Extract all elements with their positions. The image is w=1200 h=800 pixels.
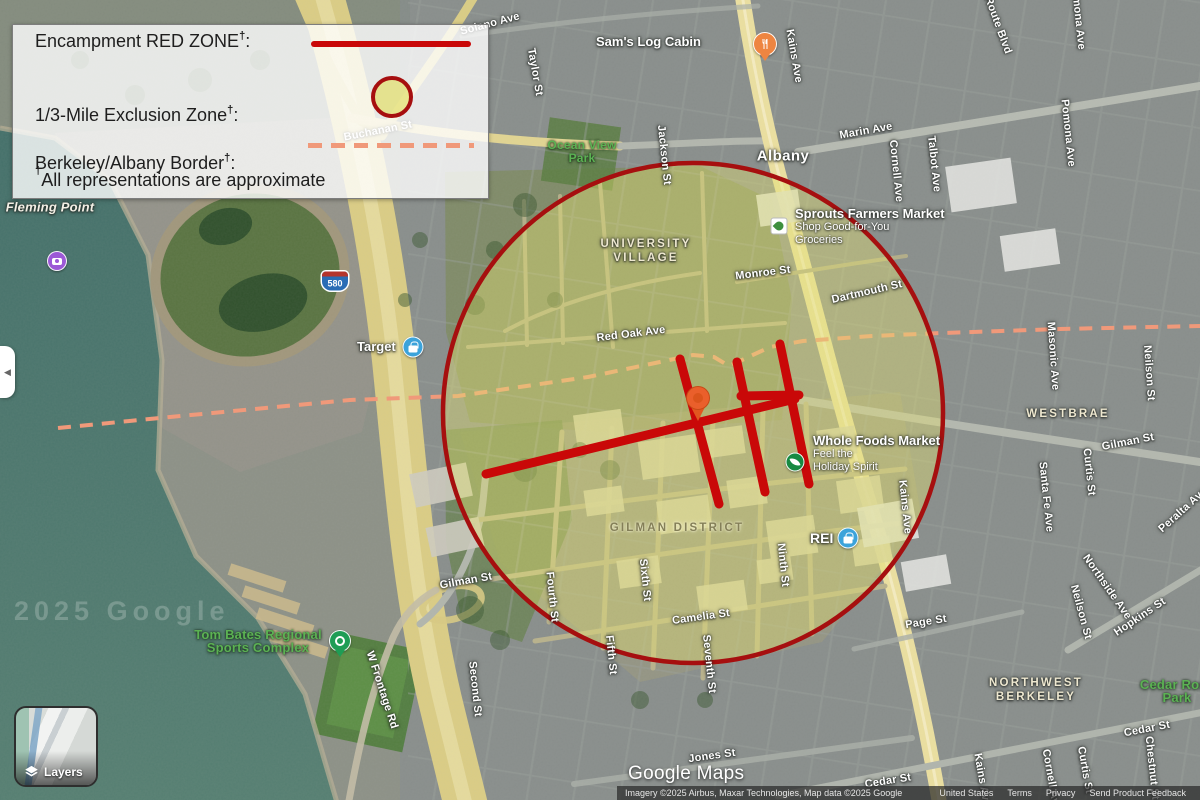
legend-label-red-zone: Encampment RED ZONE [35,31,239,52]
legend-swatch-red-line [311,41,471,47]
chevron-left-icon: ◀ [4,367,11,378]
legend-swatch-exclusion-circle [371,76,413,118]
fork-knife-icon [759,38,771,50]
rei-store-icon[interactable] [838,528,859,549]
layers-label: Layers [44,765,83,779]
target-store-icon[interactable] [403,337,424,358]
privacy-link[interactable]: Privacy [1046,788,1076,798]
restaurant-pin-icon[interactable] [753,32,777,56]
lock-icon [844,536,853,543]
poi-target[interactable]: Target [357,339,396,354]
region-label: United States [939,788,993,798]
layers-button[interactable]: Layers [14,706,98,787]
sprout-leaf-icon [773,220,786,233]
legend-footnote: †All representations are approximate [35,170,325,191]
sprouts-store-icon[interactable] [771,218,788,235]
attribution-bar: Imagery ©2025 Airbus, Maxar Technologies… [617,786,1200,800]
dagger-mark: † [239,30,245,42]
photo-spot-icon[interactable] [47,251,67,271]
dagger-mark: † [35,165,41,177]
leaf-icon [789,456,800,467]
google-maps-logo[interactable]: Google Maps [628,763,744,785]
legend-swatch-dashed-line [308,143,474,148]
dagger-mark: † [224,152,230,164]
camera-icon [52,258,62,265]
imagery-attribution: Imagery ©2025 Airbus, Maxar Technologies… [617,788,939,798]
dagger-mark: † [227,104,233,116]
legend-panel: Encampment RED ZONE†: 1/3-Mile Exclusion… [12,24,489,199]
lock-icon [409,345,418,352]
poi-rei[interactable]: REI [810,531,833,546]
poi-sprouts[interactable]: Sprouts Farmers Market Shop Good-for-You… [795,206,945,247]
poi-whole-foods[interactable]: Whole Foods Market Feel the Holiday Spir… [813,433,940,474]
legend-label-exclusion-zone: 1/3-Mile Exclusion Zone [35,105,227,126]
park-ring-icon [335,636,345,646]
feedback-link[interactable]: Send Product Feedback [1089,788,1186,798]
interstate-580-shield: 580 [322,272,348,291]
terms-link[interactable]: Terms [1007,788,1032,798]
side-panel-collapse-button[interactable]: ◀ [0,346,15,398]
google-watermark: 2025 Google [14,596,230,627]
layers-icon [24,764,39,779]
whole-foods-icon[interactable] [786,453,805,472]
park-pin-icon[interactable] [329,630,351,652]
map-viewport[interactable]: Solano Ave Taylor St Jackson St Kains Av… [0,0,1200,800]
poi-sams-log-cabin[interactable]: Sam's Log Cabin [596,34,701,49]
